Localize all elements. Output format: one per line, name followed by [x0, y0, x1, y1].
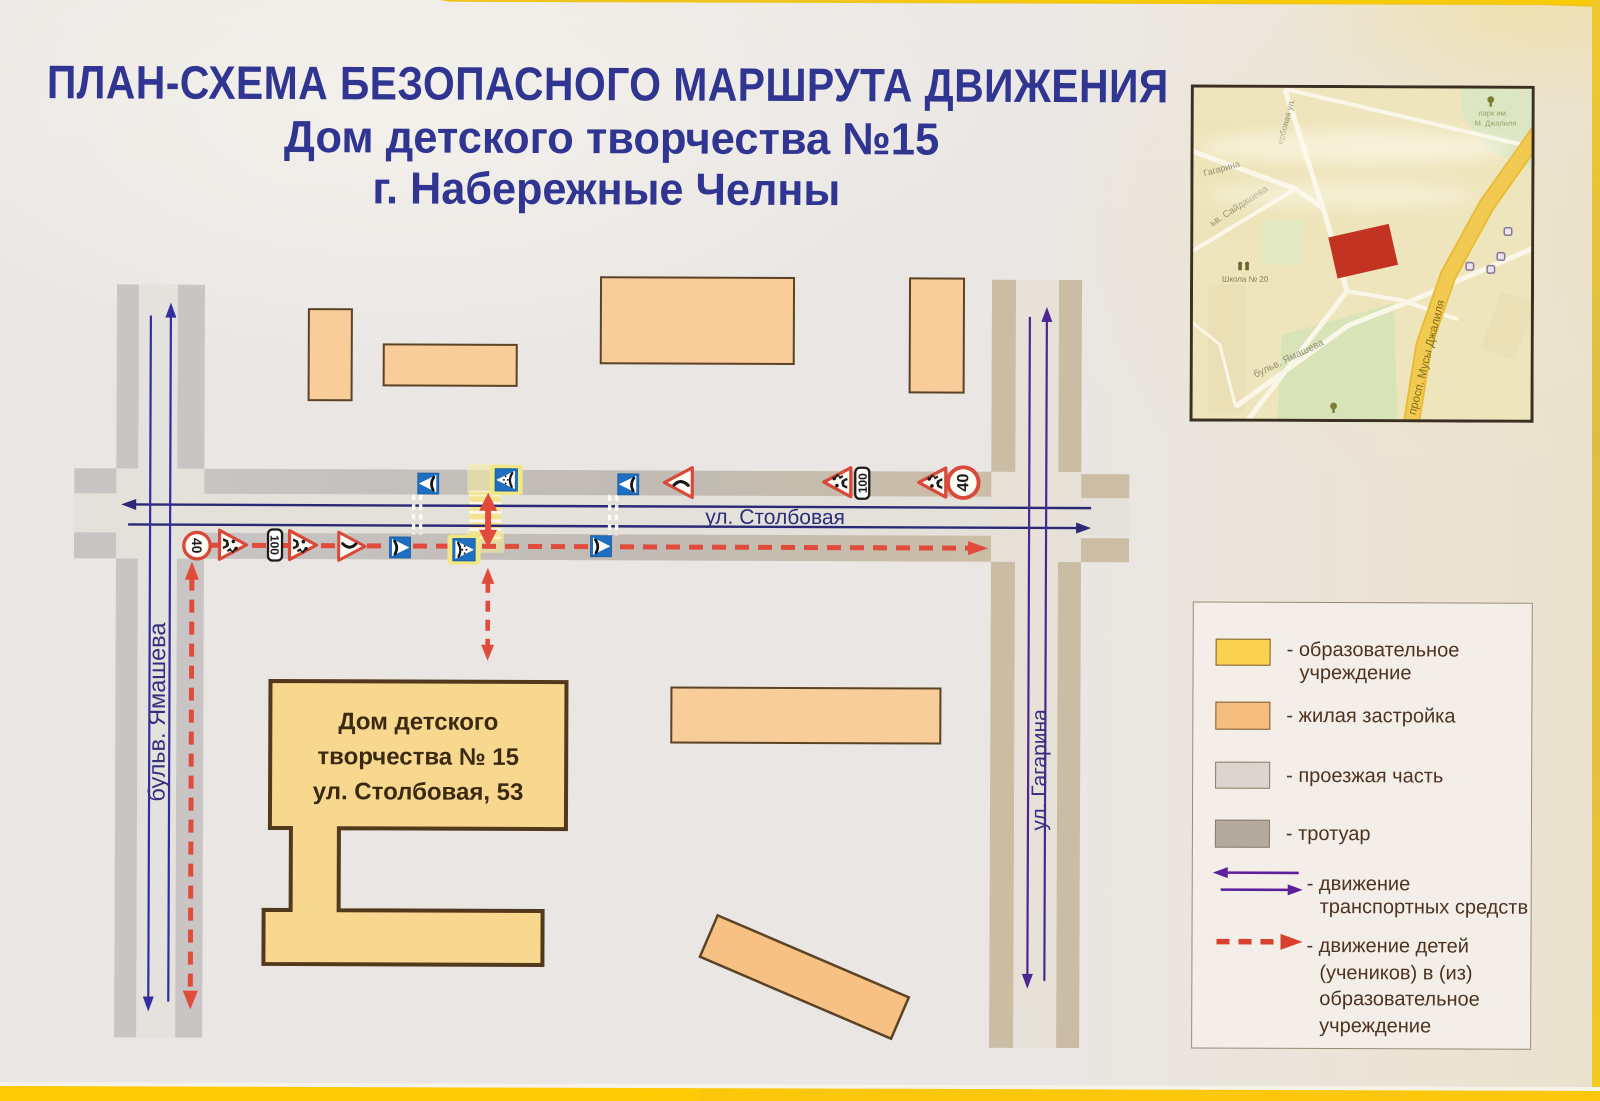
svg-text:Школа № 20: Школа № 20 [1222, 275, 1269, 284]
svg-text:парк им.: парк им. [1479, 109, 1508, 118]
svg-text:М. Джалиля: М. Джалиля [1475, 119, 1517, 128]
